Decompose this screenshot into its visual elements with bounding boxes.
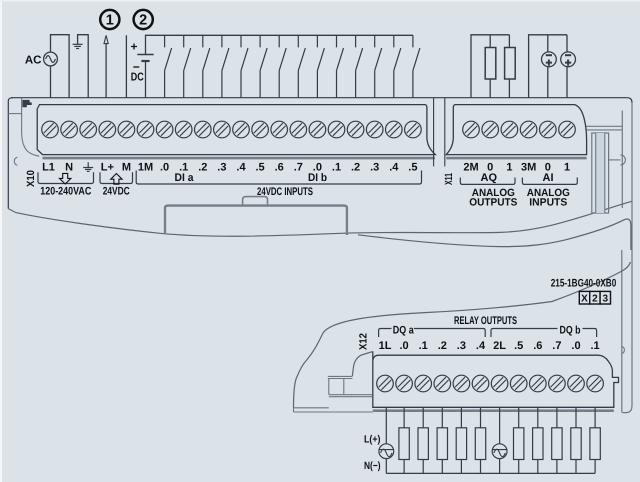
svg-text:.5: .5 (408, 161, 417, 173)
svg-text:DI b: DI b (308, 172, 327, 184)
svg-text:2M: 2M (463, 161, 478, 173)
svg-text:1L: 1L (379, 340, 392, 352)
svg-text:.0: .0 (571, 340, 580, 352)
svg-text:.6: .6 (533, 340, 542, 352)
svg-text:24VDC INPUTS: 24VDC INPUTS (257, 186, 313, 198)
svg-text:N(−): N(−) (364, 460, 381, 472)
svg-text:.2: .2 (198, 161, 207, 173)
svg-text:.4: .4 (476, 340, 486, 352)
svg-text:INPUTS: INPUTS (529, 197, 567, 209)
svg-text:.5: .5 (514, 340, 523, 352)
svg-text:.4: .4 (389, 161, 399, 173)
svg-text:24VDC: 24VDC (103, 186, 130, 198)
svg-text:L1: L1 (42, 161, 55, 173)
svg-text:.2: .2 (351, 161, 360, 173)
svg-text:X10: X10 (25, 170, 37, 187)
svg-text:X: X (581, 293, 588, 304)
svg-text:2: 2 (592, 293, 598, 304)
svg-text:.7: .7 (552, 340, 561, 352)
svg-text:.1: .1 (591, 340, 600, 352)
svg-text:.6: .6 (275, 161, 284, 173)
svg-text:1: 1 (564, 161, 570, 173)
svg-text:DC: DC (131, 72, 144, 84)
svg-text:DQ b: DQ b (560, 324, 581, 336)
svg-text:DI a: DI a (175, 172, 195, 184)
svg-text:RELAY OUTPUTS: RELAY OUTPUTS (454, 315, 517, 327)
svg-text:.5: .5 (256, 161, 265, 173)
svg-text:.3: .3 (370, 161, 379, 173)
svg-text:215-1BG40-0XB0: 215-1BG40-0XB0 (551, 277, 617, 289)
svg-text:.2: .2 (438, 340, 447, 352)
svg-text:2L: 2L (493, 340, 506, 352)
svg-text:.3: .3 (217, 161, 226, 173)
svg-text:N: N (65, 161, 73, 173)
svg-text:1: 1 (106, 13, 114, 29)
svg-text:120-240VAC: 120-240VAC (40, 186, 91, 198)
svg-text:.1: .1 (419, 340, 428, 352)
svg-text:M: M (122, 161, 131, 173)
svg-text:1M: 1M (138, 161, 153, 173)
svg-text:.7: .7 (294, 161, 303, 173)
svg-text:AQ: AQ (481, 172, 498, 184)
svg-text:.3: .3 (457, 340, 466, 352)
svg-text:.0: .0 (160, 161, 169, 173)
svg-text:.4: .4 (236, 161, 246, 173)
svg-text:OUTPUTS: OUTPUTS (469, 197, 517, 209)
svg-text:.0: .0 (400, 340, 409, 352)
svg-text:.1: .1 (332, 161, 341, 173)
svg-text:2: 2 (139, 13, 147, 29)
svg-text:X12: X12 (358, 333, 370, 350)
svg-text:DQ a: DQ a (393, 324, 415, 336)
svg-text:3M: 3M (521, 161, 536, 173)
svg-text:3: 3 (603, 293, 609, 304)
svg-text:L+: L+ (101, 161, 114, 173)
svg-text:+: + (130, 40, 137, 54)
svg-text:AI: AI (543, 172, 554, 184)
svg-text:AC: AC (25, 54, 42, 66)
svg-text:1: 1 (506, 161, 512, 173)
svg-text:X11: X11 (443, 173, 455, 185)
svg-text:L(+): L(+) (364, 433, 381, 445)
